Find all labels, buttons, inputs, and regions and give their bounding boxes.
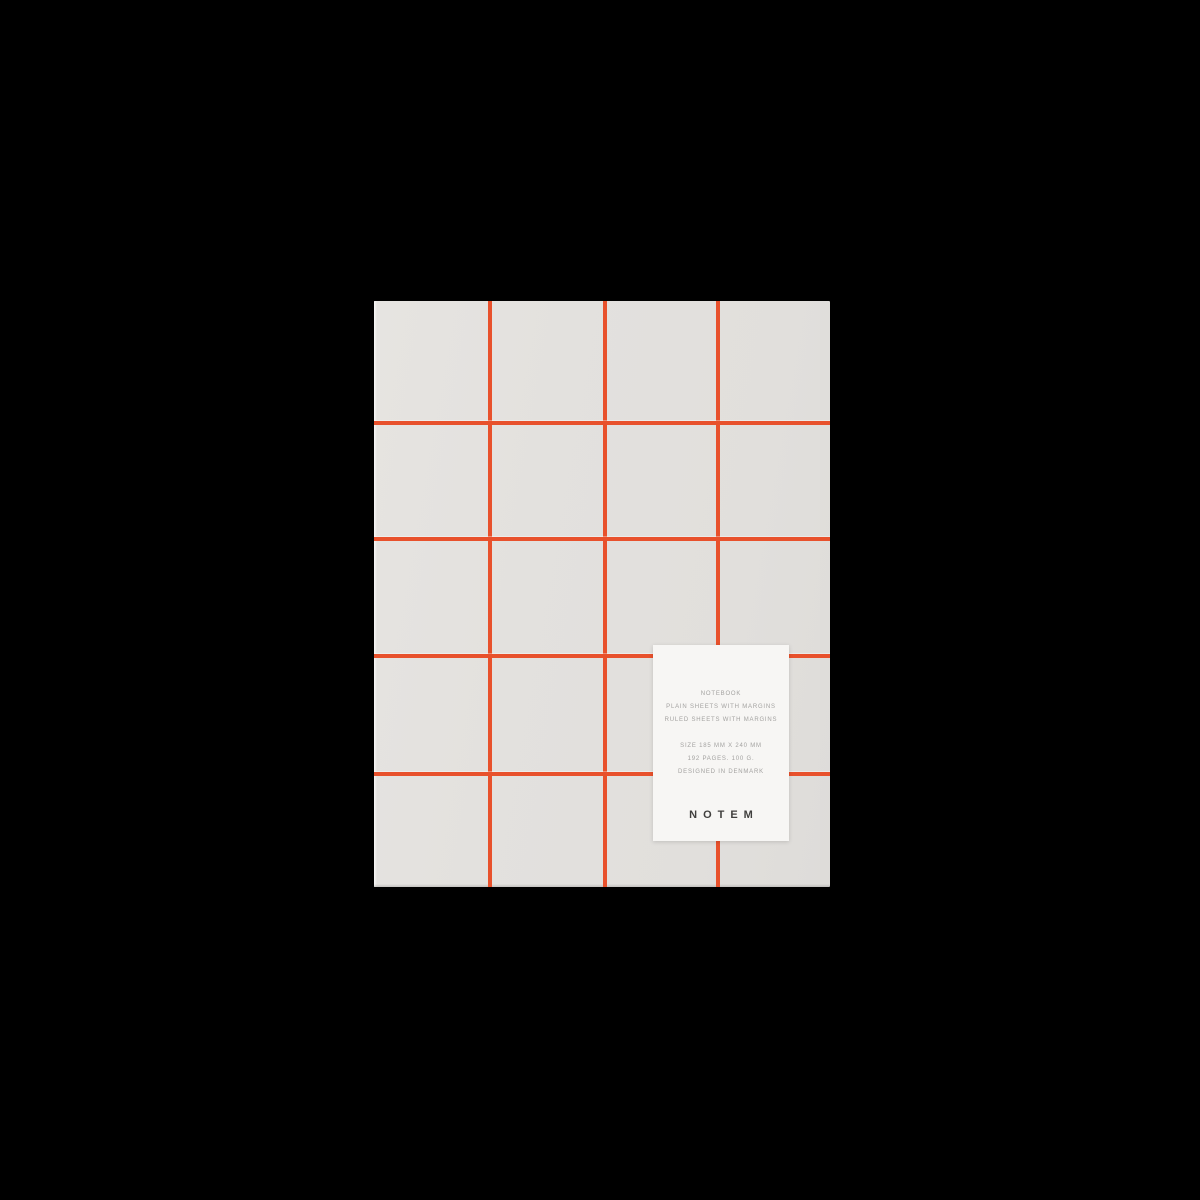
product-spec-label: NOTEBOOK PLAIN SHEETS WITH MARGINS RULED… [653, 645, 789, 841]
label-line-designed: DESIGNED IN DENMARK [653, 766, 789, 779]
grid-line-vertical-1 [488, 301, 492, 887]
label-line-size: SIZE 185 MM X 240 MM [653, 740, 789, 753]
grid-line-horizontal-2 [374, 537, 830, 541]
grid-line-horizontal-1 [374, 421, 830, 425]
notebook-spine-edge [374, 301, 377, 887]
grid-line-vertical-2 [603, 301, 607, 887]
label-line-pages: 192 PAGES. 100 G. [653, 753, 789, 766]
label-line-notebook: NOTEBOOK [653, 688, 789, 701]
label-line-ruled-sheets: RULED SHEETS WITH MARGINS [653, 714, 789, 727]
label-specs-group: SIZE 185 MM X 240 MM 192 PAGES. 100 G. D… [653, 740, 789, 779]
notem-brand-wordmark: NOTEM [653, 808, 789, 822]
product-photo-scene: NOTEBOOK PLAIN SHEETS WITH MARGINS RULED… [0, 0, 1200, 1200]
notebook-cover: NOTEBOOK PLAIN SHEETS WITH MARGINS RULED… [374, 301, 830, 887]
notebook-bottom-edge [374, 884, 830, 887]
label-line-plain-sheets: PLAIN SHEETS WITH MARGINS [653, 701, 789, 714]
